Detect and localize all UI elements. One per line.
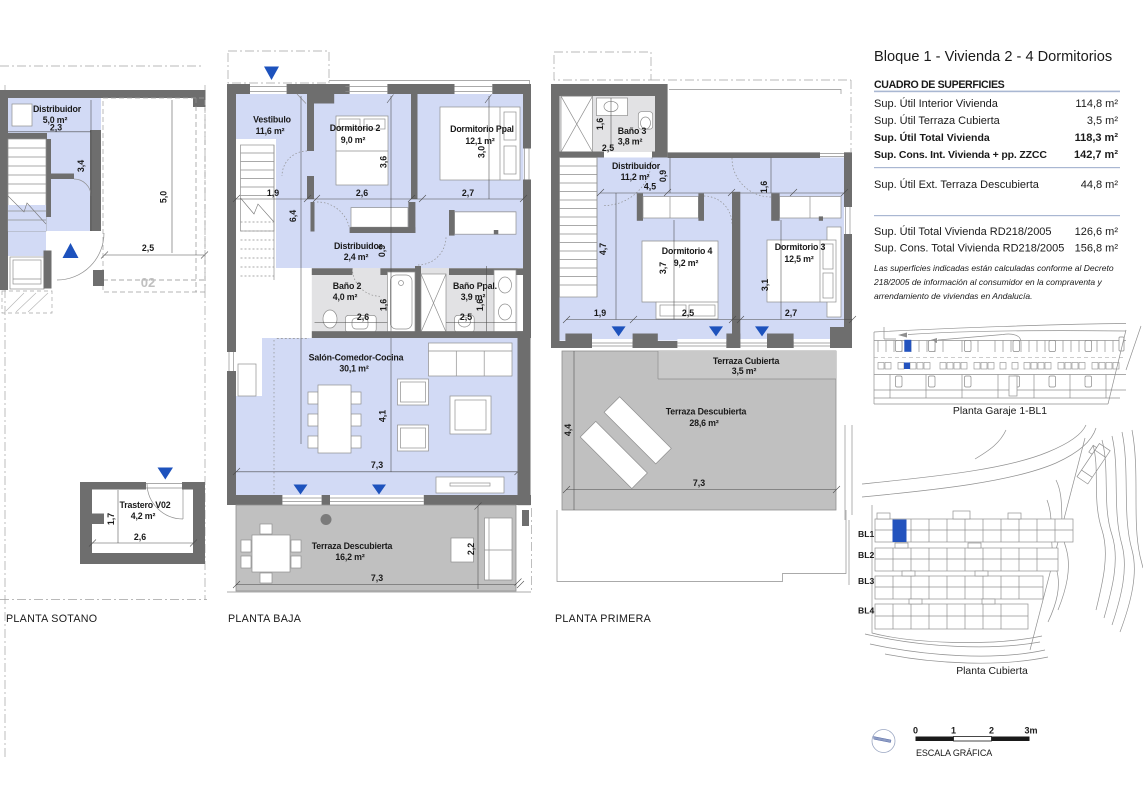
svg-text:6,4: 6,4 [288, 210, 298, 222]
svg-text:PLANTA SOTANO: PLANTA SOTANO [6, 613, 97, 625]
svg-text:2,7: 2,7 [462, 188, 474, 198]
svg-text:2,5: 2,5 [142, 243, 154, 253]
svg-text:Distribuidor: Distribuidor [334, 241, 383, 251]
svg-text:Sup. Útil Total Vivienda RD218: Sup. Útil Total Vivienda RD218/2005 [874, 225, 1052, 238]
svg-text:4,7: 4,7 [598, 243, 608, 255]
svg-text:1,9: 1,9 [594, 308, 606, 318]
svg-text:2,5: 2,5 [602, 143, 614, 153]
svg-text:1: 1 [951, 726, 956, 736]
svg-text:12,1 m²: 12,1 m² [465, 136, 494, 146]
svg-text:BL4: BL4 [858, 606, 874, 616]
svg-text:4,4: 4,4 [563, 424, 573, 436]
svg-text:2,6: 2,6 [356, 188, 368, 198]
svg-text:2,2: 2,2 [466, 543, 476, 555]
svg-text:16,2 m²: 16,2 m² [335, 552, 364, 562]
svg-text:Terraza Descubierta: Terraza Descubierta [666, 407, 747, 417]
svg-text:7,3: 7,3 [371, 460, 383, 470]
svg-text:Trastero V02: Trastero V02 [119, 500, 170, 510]
svg-text:30,1 m²: 30,1 m² [339, 364, 368, 374]
svg-text:3m: 3m [1024, 726, 1037, 736]
svg-text:0: 0 [913, 726, 918, 736]
svg-text:BL2: BL2 [858, 550, 874, 560]
svg-text:0,9: 0,9 [658, 170, 668, 182]
svg-text:1,9: 1,9 [267, 188, 279, 198]
svg-text:arrendamiento de viviendas en: arrendamiento de viviendas en Andalucía. [874, 291, 1032, 301]
svg-text:3,5 m²: 3,5 m² [732, 366, 757, 376]
svg-text:4,0 m²: 4,0 m² [333, 292, 358, 302]
svg-text:2: 2 [989, 726, 994, 736]
svg-text:Sup. Cons. Int. Vivienda + pp.: Sup. Cons. Int. Vivienda + pp. ZZCC [874, 149, 1047, 161]
svg-text:PLANTA BAJA: PLANTA BAJA [228, 613, 302, 625]
svg-text:1,7: 1,7 [106, 513, 116, 525]
svg-text:12,5 m²: 12,5 m² [784, 254, 813, 264]
svg-text:PLANTA PRIMERA: PLANTA PRIMERA [555, 613, 652, 625]
svg-text:Sup. Útil Interior Vivienda: Sup. Útil Interior Vivienda [874, 97, 999, 110]
svg-text:0,9: 0,9 [377, 245, 387, 257]
svg-text:5,0 m²: 5,0 m² [43, 115, 68, 125]
svg-text:2,5: 2,5 [460, 312, 472, 322]
svg-text:2,6: 2,6 [357, 312, 369, 322]
svg-text:126,6 m²: 126,6 m² [1075, 226, 1119, 238]
svg-text:142,7 m²: 142,7 m² [1074, 149, 1118, 161]
svg-text:2,5: 2,5 [682, 308, 694, 318]
svg-text:Sup. Útil Ext. Terraza Descubi: Sup. Útil Ext. Terraza Descubierta [874, 178, 1040, 191]
svg-text:1,6: 1,6 [379, 299, 389, 311]
svg-text:Dormitorio 3: Dormitorio 3 [775, 242, 826, 252]
svg-text:44,8 m²: 44,8 m² [1081, 179, 1119, 191]
svg-text:Bloque 1 - Vivienda 2 - 4 Dorm: Bloque 1 - Vivienda 2 - 4 Dormitorios [874, 49, 1112, 65]
svg-text:3,8 m²: 3,8 m² [618, 137, 643, 147]
svg-text:Vestibulo: Vestibulo [253, 115, 292, 125]
svg-text:3,5 m²: 3,5 m² [1087, 115, 1119, 127]
svg-text:CUADRO DE SUPERFICIES: CUADRO DE SUPERFICIES [874, 79, 1005, 91]
svg-text:28,6 m²: 28,6 m² [689, 418, 718, 428]
svg-text:156,8 m²: 156,8 m² [1075, 243, 1119, 255]
svg-text:7,3: 7,3 [693, 478, 705, 488]
svg-text:1,6: 1,6 [475, 299, 485, 311]
svg-text:114,8 m²: 114,8 m² [1075, 98, 1118, 110]
svg-text:Dormitorio 4: Dormitorio 4 [662, 246, 713, 256]
svg-text:Terraza Descubierta: Terraza Descubierta [312, 541, 393, 551]
svg-text:1,6: 1,6 [595, 118, 605, 130]
svg-text:Sup. Útil Terraza Cubierta: Sup. Útil Terraza Cubierta [874, 114, 1001, 127]
svg-text:3,7: 3,7 [658, 262, 668, 274]
svg-text:Planta Cubierta: Planta Cubierta [956, 666, 1028, 677]
svg-text:118,3 m²: 118,3 m² [1075, 132, 1119, 144]
svg-text:Distribuidor: Distribuidor [612, 161, 661, 171]
svg-text:3,0: 3,0 [477, 146, 487, 158]
svg-text:4,2 m²: 4,2 m² [131, 511, 156, 521]
svg-text:4,5: 4,5 [644, 182, 656, 192]
svg-text:3,6: 3,6 [379, 156, 389, 168]
svg-text:ESCALA GRÁFICA: ESCALA GRÁFICA [916, 748, 992, 758]
svg-text:Las superficies indicadas está: Las superficies indicadas están calculad… [874, 263, 1114, 273]
svg-text:Dormitorio 2: Dormitorio 2 [330, 123, 381, 133]
svg-text:Baño 2: Baño 2 [333, 281, 362, 291]
svg-text:3,4: 3,4 [76, 160, 86, 172]
svg-text:BL3: BL3 [858, 576, 874, 586]
svg-text:Terraza Cubierta: Terraza Cubierta [713, 356, 780, 366]
svg-text:Distribuidor: Distribuidor [33, 104, 82, 114]
svg-text:2,7: 2,7 [785, 308, 797, 318]
svg-text:Baño Ppal.: Baño Ppal. [453, 281, 497, 291]
svg-text:Sup. Útil Total Vivienda: Sup. Útil Total Vivienda [874, 131, 990, 144]
svg-text:2,6: 2,6 [134, 532, 146, 542]
svg-text:Planta Garaje 1-BL1: Planta Garaje 1-BL1 [953, 406, 1047, 417]
svg-text:Sup. Cons. Total Vivienda RD21: Sup. Cons. Total Vivienda RD218/2005 [874, 243, 1064, 255]
svg-text:1,6: 1,6 [759, 181, 769, 193]
svg-text:7,3: 7,3 [371, 573, 383, 583]
svg-text:5,0: 5,0 [159, 191, 169, 203]
svg-text:218/2005 de información al con: 218/2005 de información al consumidor en… [873, 277, 1102, 287]
svg-text:11,6 m²: 11,6 m² [256, 126, 285, 136]
svg-text:Dormitorio Ppal: Dormitorio Ppal [450, 124, 514, 134]
svg-text:9,2 m²: 9,2 m² [674, 258, 699, 268]
svg-text:3,1: 3,1 [760, 279, 770, 291]
svg-text:Salón-Comedor-Cocina: Salón-Comedor-Cocina [309, 353, 404, 363]
svg-text:11,2 m²: 11,2 m² [621, 172, 650, 182]
svg-text:2,4 m²: 2,4 m² [344, 252, 369, 262]
svg-text:Baño 3: Baño 3 [618, 126, 647, 136]
svg-text:02: 02 [141, 275, 155, 290]
svg-text:9,0 m²: 9,0 m² [341, 135, 366, 145]
svg-text:BL1: BL1 [858, 529, 874, 539]
svg-text:4,1: 4,1 [378, 410, 388, 422]
